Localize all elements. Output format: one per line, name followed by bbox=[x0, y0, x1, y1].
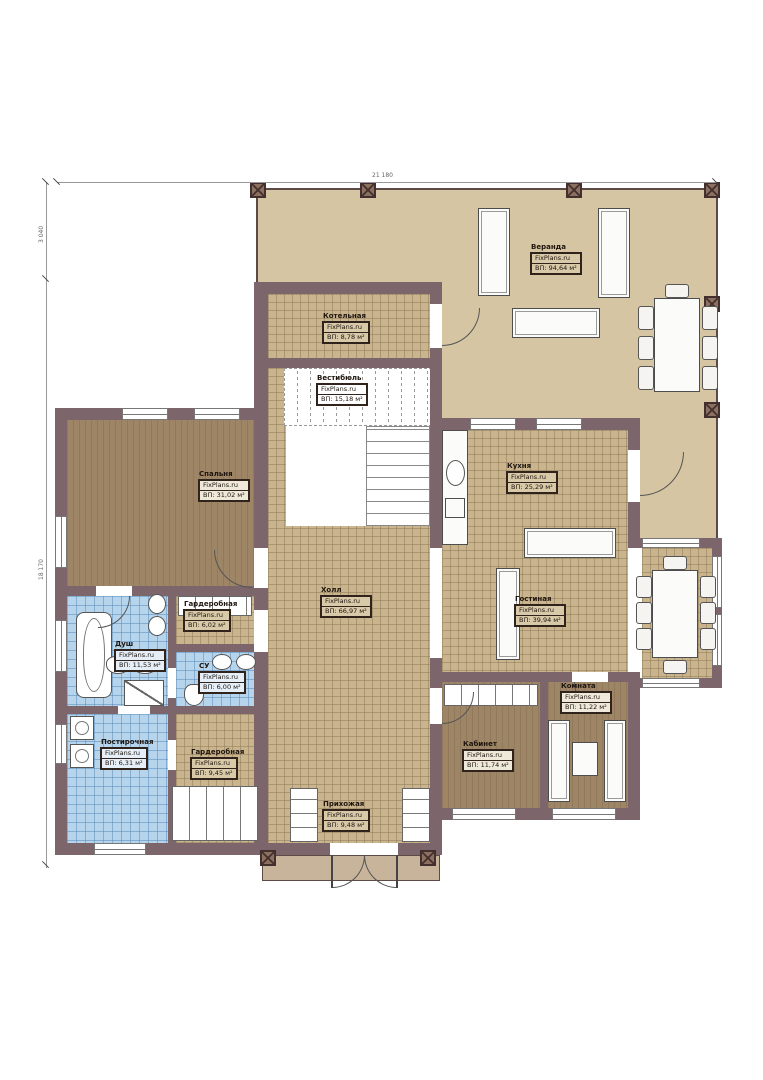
door-opening bbox=[118, 706, 150, 714]
room-area: ВП: 39,94 м² bbox=[516, 616, 564, 625]
wall bbox=[256, 358, 442, 368]
window bbox=[94, 843, 146, 855]
room-label-entry: Прихожая FixPlans.ru ВП: 9,48 м² bbox=[322, 800, 370, 832]
room-area: ВП: 9,48 м² bbox=[324, 821, 368, 830]
sofa bbox=[604, 720, 626, 802]
room-label-laundry: Постирочная FixPlans.ru ВП: 6,31 м² bbox=[100, 738, 153, 770]
window bbox=[552, 808, 616, 820]
room-name: Душ bbox=[115, 640, 166, 648]
pillar-icon bbox=[360, 182, 376, 198]
room-area: ВП: 31,02 м² bbox=[200, 491, 248, 500]
brand-label: FixPlans.ru bbox=[322, 597, 370, 607]
pillar-icon bbox=[250, 182, 266, 198]
room-info-box: FixPlans.ru ВП: 9,48 м² bbox=[322, 809, 370, 832]
room-info-box: FixPlans.ru ВП: 9,45 м² bbox=[190, 757, 238, 780]
archway-opening bbox=[430, 548, 442, 658]
brand-label: FixPlans.ru bbox=[508, 473, 556, 483]
room-label-office: Кабинет FixPlans.ru ВП: 11,74 м² bbox=[462, 740, 514, 772]
room-name: Комната bbox=[561, 682, 612, 690]
door-opening bbox=[168, 740, 176, 770]
brand-label: FixPlans.ru bbox=[116, 651, 164, 661]
pillar-icon bbox=[704, 402, 720, 418]
window bbox=[122, 408, 168, 420]
wall bbox=[168, 644, 254, 652]
room-name: Спальня bbox=[199, 470, 250, 478]
brand-label: FixPlans.ru bbox=[324, 323, 368, 333]
window bbox=[470, 418, 516, 430]
room-area: ВП: 6,31 м² bbox=[102, 759, 146, 768]
room-label-wardrobe-2: Гардеробная FixPlans.ru ВП: 9,45 м² bbox=[190, 748, 244, 780]
chair bbox=[702, 336, 718, 360]
chair bbox=[702, 366, 718, 390]
door-opening bbox=[628, 450, 640, 502]
pillar-icon bbox=[260, 850, 276, 866]
brand-label: FixPlans.ru bbox=[200, 481, 248, 491]
room-name: Котельная bbox=[323, 312, 370, 320]
room-info-box: FixPlans.ru ВП: 25,29 м² bbox=[506, 471, 558, 494]
dimension-line-left bbox=[46, 182, 47, 868]
room-name: Холл bbox=[321, 586, 372, 594]
veranda-edge bbox=[256, 188, 718, 190]
brand-label: FixPlans.ru bbox=[532, 254, 580, 264]
wardrobe-unit bbox=[290, 788, 318, 842]
kitchen-island bbox=[524, 528, 616, 558]
door-opening bbox=[430, 688, 442, 724]
washing-machine bbox=[70, 716, 94, 740]
dimension-label-left-top: 3 040 bbox=[38, 226, 45, 243]
wall bbox=[628, 672, 640, 820]
brand-label: FixPlans.ru bbox=[464, 751, 512, 761]
chair bbox=[636, 576, 652, 598]
wall bbox=[55, 843, 268, 855]
room-area: ВП: 11,22 м² bbox=[562, 703, 610, 712]
bench bbox=[598, 208, 630, 298]
chair bbox=[638, 366, 654, 390]
room-area: ВП: 6,02 м² bbox=[185, 621, 229, 630]
wall bbox=[256, 282, 442, 294]
chair bbox=[663, 556, 687, 570]
shower-tray bbox=[124, 680, 164, 706]
brand-label: FixPlans.ru bbox=[185, 611, 229, 621]
wardrobe-unit bbox=[172, 786, 258, 841]
door-opening bbox=[254, 548, 268, 588]
wall bbox=[55, 706, 268, 714]
room-name: Вестибюль bbox=[317, 374, 368, 382]
room-info-box: FixPlans.ru ВП: 8,78 м² bbox=[322, 321, 370, 344]
sink bbox=[148, 616, 166, 636]
kitchen-sink bbox=[446, 460, 465, 486]
room-label-boiler: Котельная FixPlans.ru ВП: 8,78 м² bbox=[322, 312, 370, 344]
room-info-box: FixPlans.ru ВП: 15,18 м² bbox=[316, 383, 368, 406]
window bbox=[55, 516, 67, 568]
room-area: ВП: 66,97 м² bbox=[322, 607, 370, 616]
room-info-box: FixPlans.ru ВП: 39,94 м² bbox=[514, 604, 566, 627]
room-area: ВП: 8,78 м² bbox=[324, 333, 368, 342]
chair bbox=[702, 306, 718, 330]
table bbox=[572, 742, 598, 776]
dryer bbox=[70, 744, 94, 768]
sink bbox=[148, 594, 166, 614]
chair bbox=[638, 336, 654, 360]
window bbox=[55, 620, 67, 672]
room-label-veranda: Веранда FixPlans.ru ВП: 94,64 м² bbox=[530, 243, 582, 275]
sofa bbox=[548, 720, 570, 802]
door-opening bbox=[168, 668, 176, 698]
room-label-bedroom: Спальня FixPlans.ru ВП: 31,02 м² bbox=[198, 470, 250, 502]
room-name: Гардеробная bbox=[184, 600, 237, 608]
dimension-label-top: 21 180 bbox=[372, 172, 393, 179]
room-label-wc: СУ FixPlans.ru ВП: 6,00 м² bbox=[198, 662, 246, 694]
room-info-box: FixPlans.ru ВП: 31,02 м² bbox=[198, 479, 250, 502]
brand-label: FixPlans.ru bbox=[192, 759, 236, 769]
window bbox=[194, 408, 240, 420]
dining-table bbox=[654, 298, 700, 392]
chair bbox=[636, 602, 652, 624]
brand-label: FixPlans.ru bbox=[324, 811, 368, 821]
wall bbox=[540, 682, 548, 808]
chair bbox=[663, 660, 687, 674]
window bbox=[55, 724, 67, 764]
bench bbox=[512, 308, 600, 338]
window bbox=[452, 808, 516, 820]
veranda-edge bbox=[256, 188, 258, 284]
brand-label: FixPlans.ru bbox=[102, 749, 146, 759]
brand-label: FixPlans.ru bbox=[516, 606, 564, 616]
veranda-edge bbox=[716, 188, 718, 540]
door-leaf bbox=[396, 855, 398, 888]
window bbox=[642, 538, 700, 548]
room-label-hall: Холл FixPlans.ru ВП: 66,97 м² bbox=[320, 586, 372, 618]
brand-label: FixPlans.ru bbox=[562, 693, 610, 703]
room-label-bath: Душ FixPlans.ru ВП: 11,53 м² bbox=[114, 640, 166, 672]
room-area: ВП: 94,64 м² bbox=[532, 264, 580, 273]
dining-table bbox=[652, 570, 698, 658]
dimension-line-top bbox=[57, 182, 717, 183]
room-area: ВП: 11,74 м² bbox=[464, 761, 512, 770]
room-name: Гардеробная bbox=[191, 748, 244, 756]
room-info-box: FixPlans.ru ВП: 11,22 м² bbox=[560, 691, 612, 714]
brand-label: FixPlans.ru bbox=[200, 673, 244, 683]
room-area: ВП: 9,45 м² bbox=[192, 769, 236, 778]
kitchen-counter bbox=[442, 430, 468, 545]
window bbox=[536, 418, 582, 430]
pillar-icon bbox=[566, 182, 582, 198]
room-info-box: FixPlans.ru ВП: 11,74 м² bbox=[462, 749, 514, 772]
door-opening bbox=[430, 304, 442, 348]
wall bbox=[430, 672, 640, 682]
room-info-box: FixPlans.ru ВП: 94,64 м² bbox=[530, 252, 582, 275]
room-info-box: FixPlans.ru ВП: 6,00 м² bbox=[198, 671, 246, 694]
chair bbox=[700, 576, 716, 598]
room-info-box: FixPlans.ru ВП: 6,31 м² bbox=[100, 747, 148, 770]
room-name: Гостиная bbox=[515, 595, 566, 603]
brand-label: FixPlans.ru bbox=[318, 385, 366, 395]
chair bbox=[700, 628, 716, 650]
room-info-box: FixPlans.ru ВП: 66,97 м² bbox=[320, 595, 372, 618]
room-name: Прихожая bbox=[323, 800, 370, 808]
room-name: Постирочная bbox=[101, 738, 153, 746]
floor-plan: Веранда FixPlans.ru ВП: 94,64 м² Котельн… bbox=[0, 0, 763, 1080]
door-arc bbox=[364, 855, 397, 888]
room-name: Кабинет bbox=[463, 740, 514, 748]
room-area: ВП: 6,00 м² bbox=[200, 683, 244, 692]
room-label-room: Комната FixPlans.ru ВП: 11,22 м² bbox=[560, 682, 612, 714]
room-label-vestibule: Вестибюль FixPlans.ru ВП: 15,18 м² bbox=[316, 374, 368, 406]
stove bbox=[445, 498, 465, 518]
room-area: ВП: 11,53 м² bbox=[116, 661, 164, 670]
room-area: ВП: 25,29 м² bbox=[508, 483, 556, 492]
door-leaf bbox=[331, 855, 333, 888]
dimension-label-left-bottom: 18 170 bbox=[38, 559, 45, 580]
room-label-wardrobe-1: Гардеробная FixPlans.ru ВП: 6,02 м² bbox=[183, 600, 237, 632]
room-info-box: FixPlans.ru ВП: 6,02 м² bbox=[183, 609, 231, 632]
room-area: ВП: 15,18 м² bbox=[318, 395, 366, 404]
room-label-kitchen: Кухня FixPlans.ru ВП: 25,29 м² bbox=[506, 462, 558, 494]
door-opening bbox=[96, 586, 132, 596]
room-name: СУ bbox=[199, 662, 246, 670]
room-label-living: Гостиная FixPlans.ru ВП: 39,94 м² bbox=[514, 595, 566, 627]
chair bbox=[700, 602, 716, 624]
bench bbox=[478, 208, 510, 296]
chair bbox=[638, 306, 654, 330]
window bbox=[642, 678, 700, 688]
wall bbox=[430, 418, 640, 430]
entry-door-opening bbox=[330, 843, 398, 855]
door-arc bbox=[332, 855, 365, 888]
passage-opening bbox=[254, 610, 268, 652]
pillar-icon bbox=[420, 850, 436, 866]
chair bbox=[636, 628, 652, 650]
chair bbox=[665, 284, 689, 298]
room-info-box: FixPlans.ru ВП: 11,53 м² bbox=[114, 649, 166, 672]
room-name: Кухня bbox=[507, 462, 558, 470]
stairs-lower-flight bbox=[366, 426, 430, 526]
door-opening bbox=[572, 672, 608, 682]
wardrobe-unit bbox=[402, 788, 430, 842]
room-name: Веранда bbox=[531, 243, 582, 251]
stair-landing bbox=[286, 426, 366, 526]
